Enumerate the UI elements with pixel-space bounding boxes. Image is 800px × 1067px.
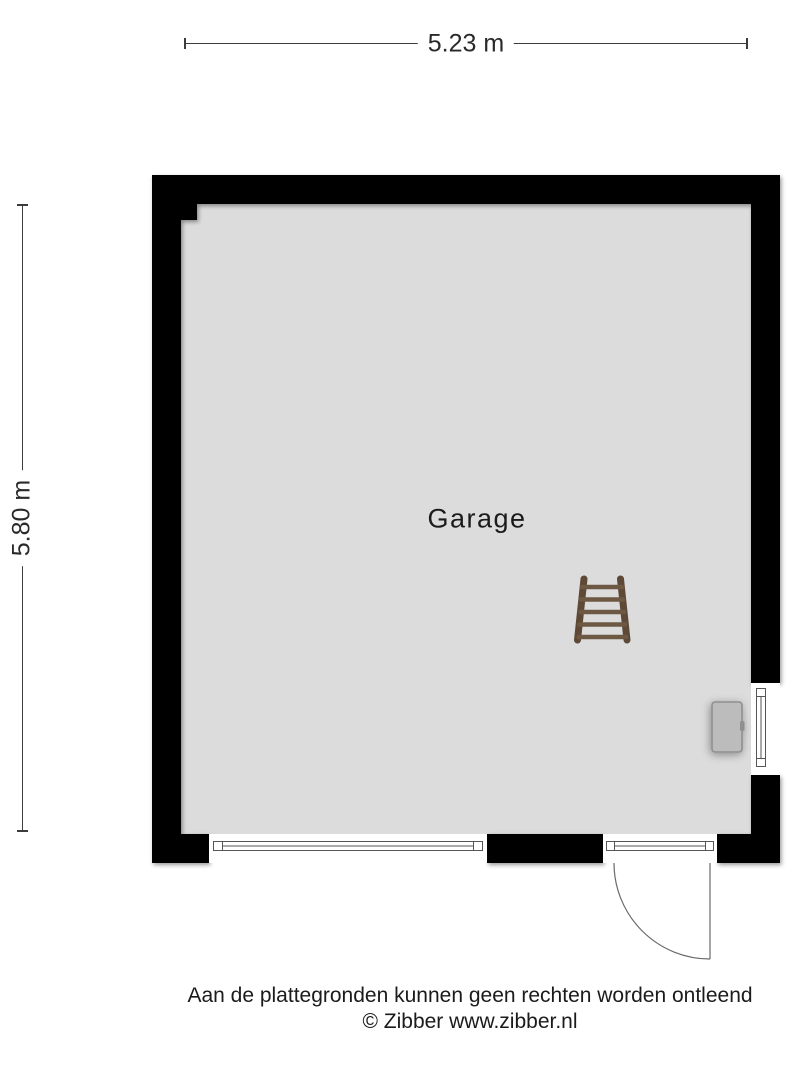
dimension-tick [184, 38, 186, 49]
wall-bottom-right [717, 834, 751, 863]
dimension-tick [746, 38, 748, 49]
wall-right-upper [751, 204, 780, 683]
footer-copyright: © Zibber www.zibber.nl [140, 1009, 800, 1035]
top-dimension-label: 5.23 m [418, 30, 514, 59]
floorplan-page: 5.23 m 5.80 m Garage Aan de plattegronde… [0, 0, 800, 1067]
door-transom-window [603, 834, 717, 863]
window-right [751, 683, 780, 775]
wall-top [152, 175, 780, 204]
footer-disclaimer: Aan de plattegronden kunnen geen rechten… [140, 983, 800, 1009]
dimension-tick [17, 204, 28, 206]
left-dimension-label: 5.80 m [8, 470, 37, 566]
window-bottom [209, 834, 487, 863]
corner-column [181, 204, 197, 220]
footer: Aan de plattegronden kunnen geen rechten… [140, 983, 800, 1035]
wall-right-lower [751, 775, 780, 863]
wall-left [152, 204, 181, 863]
boiler-icon [712, 702, 745, 752]
wall-bottom-left [181, 834, 209, 863]
door-swing [614, 863, 710, 959]
room-label: Garage [427, 504, 526, 535]
floorplan-canvas [0, 0, 800, 1067]
dimension-tick [17, 830, 28, 832]
wall-bottom-middle [487, 834, 603, 863]
